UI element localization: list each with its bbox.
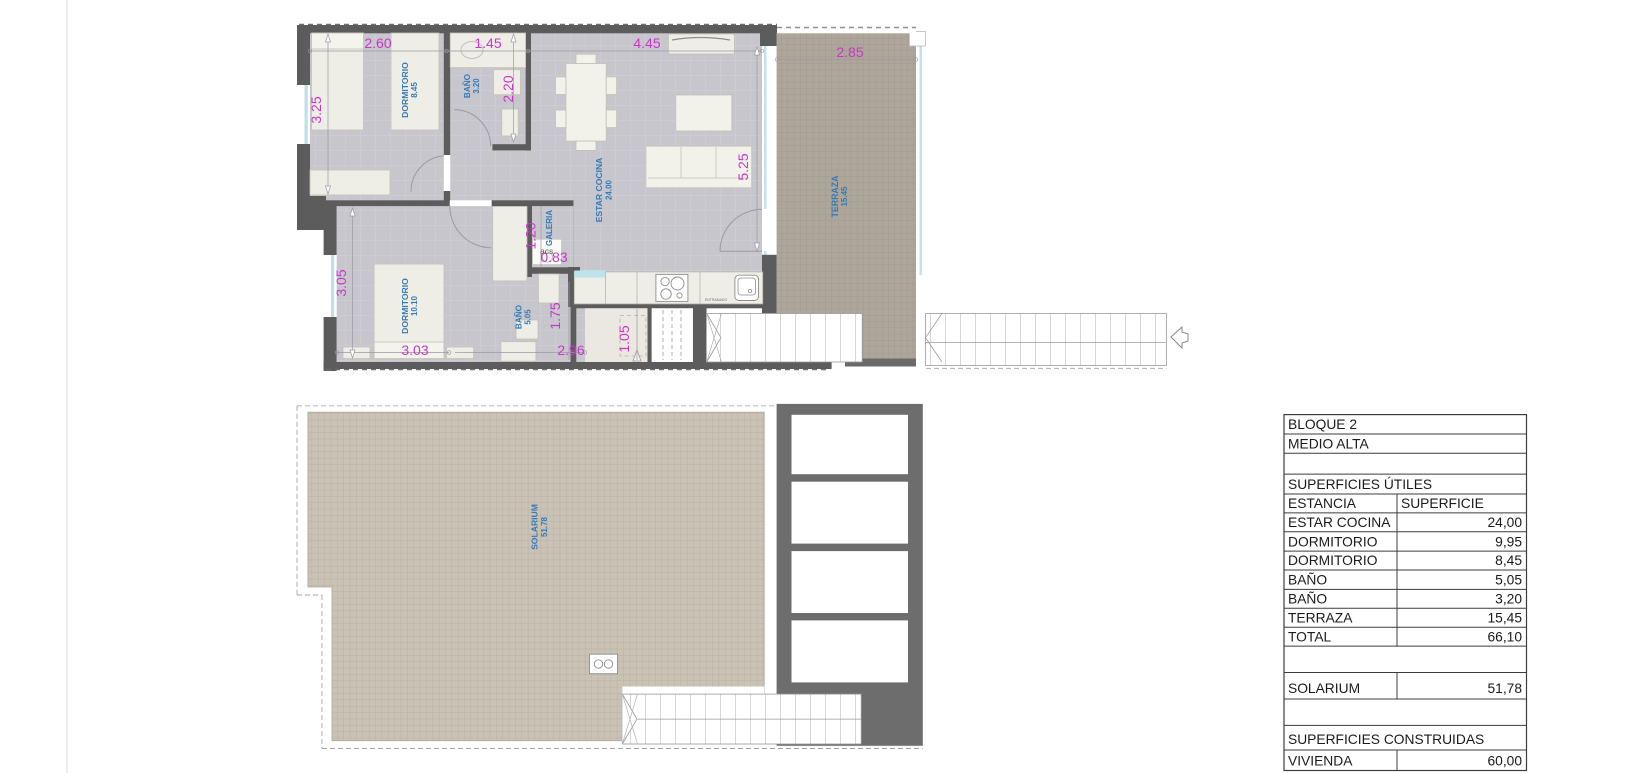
svg-text:15,45: 15,45	[1487, 610, 1522, 625]
svg-text:5.25: 5.25	[735, 153, 751, 180]
svg-text:TERRAZA: TERRAZA	[830, 175, 840, 218]
svg-text:5,05: 5,05	[1495, 573, 1522, 588]
svg-text:24.00: 24.00	[605, 179, 614, 200]
svg-text:DORMITORIO: DORMITORIO	[400, 278, 410, 334]
svg-text:2.96: 2.96	[557, 342, 584, 358]
svg-text:ESTAR COCINA: ESTAR COCINA	[594, 158, 604, 223]
svg-text:GALERIA: GALERIA	[545, 210, 554, 246]
svg-text:5.05: 5.05	[524, 309, 533, 325]
svg-text:3.20: 3.20	[472, 78, 481, 94]
svg-text:ENTRAMADO: ENTRAMADO	[705, 298, 728, 302]
svg-text:2.20: 2.20	[500, 75, 516, 102]
svg-text:2.60: 2.60	[364, 35, 391, 51]
svg-text:9,95: 9,95	[1495, 534, 1522, 549]
svg-text:10.10: 10.10	[410, 295, 419, 316]
svg-text:TERRAZA: TERRAZA	[1288, 610, 1353, 625]
svg-text:66,10: 66,10	[1487, 629, 1522, 644]
svg-text:3,20: 3,20	[1495, 592, 1522, 607]
svg-text:3.05: 3.05	[333, 269, 349, 296]
svg-text:TOTAL: TOTAL	[1288, 629, 1332, 644]
svg-text:2.85: 2.85	[836, 44, 863, 60]
svg-text:ESTAR COCINA: ESTAR COCINA	[1288, 515, 1391, 530]
svg-text:51.78: 51.78	[540, 516, 549, 537]
svg-text:DORMITORIO: DORMITORIO	[1288, 553, 1378, 568]
svg-text:SUPERFICIES ÚTILES: SUPERFICIES ÚTILES	[1288, 476, 1432, 492]
svg-text:BLOQUE 2: BLOQUE 2	[1288, 417, 1357, 432]
svg-text:24,00: 24,00	[1487, 515, 1522, 530]
svg-text:BAÑO: BAÑO	[1288, 591, 1327, 607]
svg-text:3.03: 3.03	[401, 342, 428, 358]
svg-text:SUPERFICIES CONSTRUIDAS: SUPERFICIES CONSTRUIDAS	[1288, 732, 1484, 747]
svg-text:1.75: 1.75	[547, 302, 563, 329]
svg-text:1.20: 1.20	[523, 222, 539, 249]
svg-text:51,78: 51,78	[1487, 681, 1522, 696]
svg-text:8.45: 8.45	[410, 82, 419, 98]
svg-text:4.45: 4.45	[633, 35, 660, 51]
svg-text:15.45: 15.45	[840, 186, 849, 207]
svg-text:BAÑO: BAÑO	[462, 73, 472, 98]
svg-text:SOLARIUM: SOLARIUM	[530, 504, 540, 550]
svg-text:3.25: 3.25	[308, 96, 324, 123]
svg-text:DORMITORIO: DORMITORIO	[1288, 534, 1378, 549]
svg-text:MEDIO ALTA: MEDIO ALTA	[1288, 437, 1370, 452]
svg-text:DORMITORIO: DORMITORIO	[400, 62, 410, 118]
svg-text:ESTANCIA: ESTANCIA	[1288, 496, 1357, 511]
svg-text:1.05: 1.05	[616, 325, 632, 352]
svg-text:VIVIENDA: VIVIENDA	[1288, 754, 1353, 769]
svg-text:SUPERFICIE: SUPERFICIE	[1401, 496, 1484, 511]
svg-text:60,00: 60,00	[1487, 754, 1522, 769]
svg-text:BAÑO: BAÑO	[1288, 572, 1327, 588]
svg-text:BAÑO: BAÑO	[514, 304, 524, 329]
svg-text:8,45: 8,45	[1495, 553, 1522, 568]
svg-text:acs: acs	[540, 246, 553, 256]
svg-text:1.45: 1.45	[474, 35, 501, 51]
svg-text:SOLARIUM: SOLARIUM	[1288, 681, 1360, 696]
